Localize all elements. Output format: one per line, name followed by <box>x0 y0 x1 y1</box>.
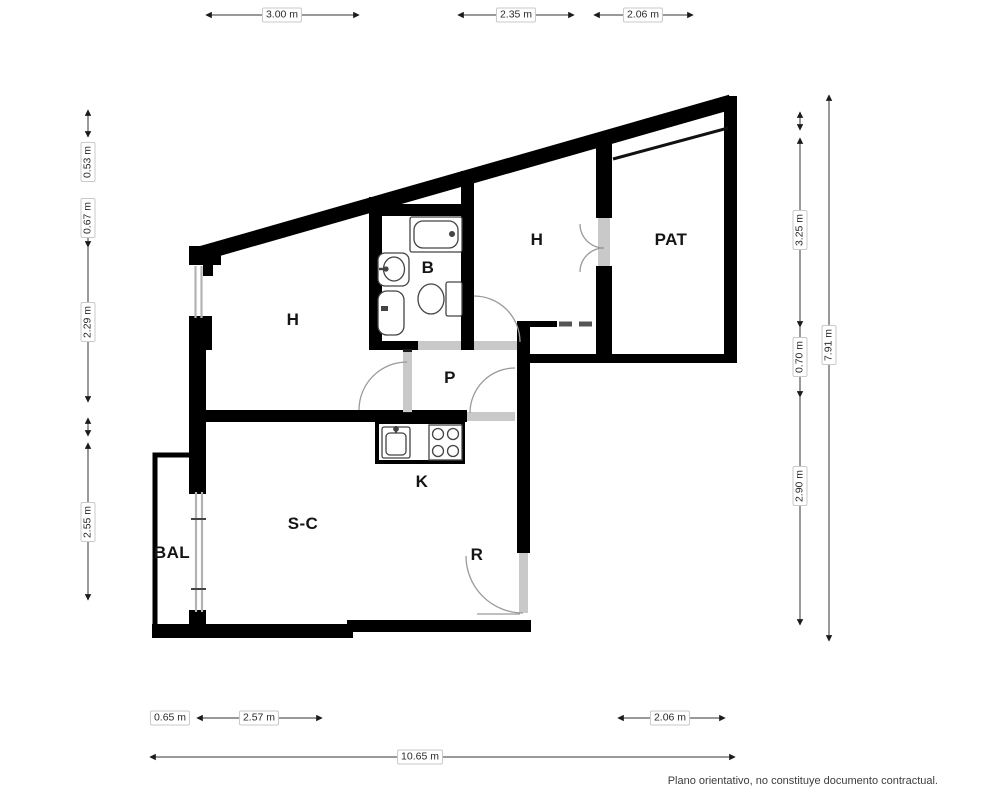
room-label-r: R <box>471 545 484 565</box>
kitchen-counter <box>377 422 463 462</box>
wall-pat-right <box>724 96 737 363</box>
wall-nook-thin <box>519 321 557 327</box>
floorplan-svg <box>0 0 1000 800</box>
dim-label-left-255: 2.55 m <box>81 502 96 542</box>
wall-h2-pat-lower <box>596 266 612 355</box>
stove <box>429 425 462 460</box>
threshold-pat-door <box>598 218 610 266</box>
dim-label-top-235: 2.35 m <box>496 8 536 23</box>
bidet <box>378 291 404 335</box>
door-arc-h1 <box>359 362 407 410</box>
dim-label-left-067: 0.67 m <box>81 198 96 238</box>
wall-h2-pat-upper <box>596 136 612 218</box>
threshold-b-door <box>418 341 461 350</box>
dim-label-top-300: 3.00 m <box>262 8 302 23</box>
fixtures <box>377 217 463 462</box>
door-arc-h2 <box>474 296 520 342</box>
dim-label-right-325: 3.25 m <box>793 210 808 250</box>
wall-left-h1 <box>189 316 212 350</box>
room-label-b: B <box>422 258 435 278</box>
dim-label-top-206: 2.06 m <box>623 8 663 23</box>
room-label-pat: PAT <box>655 230 688 250</box>
dim-label-right-290: 2.90 m <box>793 466 808 506</box>
dim-label-bottom-206: 2.06 m <box>650 711 690 726</box>
threshold-p-sc-door <box>467 412 515 421</box>
wall-bottom-left <box>152 624 353 638</box>
wall-door-post <box>461 341 474 350</box>
floorplan-page: H B H PAT P K S-C BAL R 3.00 m 2.35 m 2.… <box>0 0 1000 800</box>
dim-label-right-791: 7.91 m <box>822 325 837 365</box>
wall-b-top <box>376 204 462 216</box>
wall-h2pat-bottom <box>517 354 737 363</box>
washbasin <box>378 253 409 286</box>
walls <box>152 96 737 638</box>
dim-label-bottom-1065: 10.65 m <box>397 750 443 765</box>
room-label-h1: H <box>287 310 300 330</box>
room-label-k: K <box>416 472 429 492</box>
wall-b-h2-divider <box>461 171 474 350</box>
room-label-sc: S-C <box>288 514 318 534</box>
threshold-entry-door <box>519 553 528 613</box>
dim-label-bottom-065: 0.65 m <box>150 711 190 726</box>
kitchen-sink <box>382 426 410 458</box>
toilet <box>418 282 462 316</box>
dim-label-right-070: 0.70 m <box>793 337 808 377</box>
wall-bottom-right <box>347 620 531 632</box>
room-label-h2: H <box>531 230 544 250</box>
dim-label-left-053: 0.53 m <box>81 142 96 182</box>
wall-corner-step <box>203 258 213 276</box>
bathtub <box>410 217 462 252</box>
dim-label-left-229: 2.29 m <box>81 302 96 342</box>
room-label-bal: BAL <box>154 543 190 563</box>
wall-b-bottom <box>369 341 418 350</box>
footer-disclaimer: Plano orientativo, no constituye documen… <box>668 775 938 787</box>
door-arc-p-sc <box>470 368 515 413</box>
threshold-h2-door <box>474 341 517 350</box>
dim-label-bottom-257: 2.57 m <box>239 711 279 726</box>
room-label-p: P <box>444 368 456 388</box>
threshold-h1-door <box>403 352 412 412</box>
